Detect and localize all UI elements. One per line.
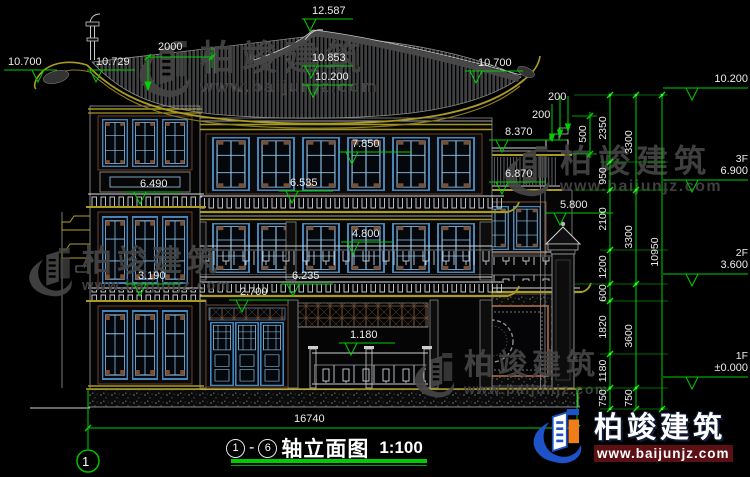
floor3-label: 3F xyxy=(664,154,748,165)
level-tower-eave-lower: 3.190 xyxy=(138,271,166,282)
floor2-label: 2F xyxy=(664,248,748,259)
dim-wing-200a: 200 xyxy=(548,92,566,103)
dim-top-2000: 2000 xyxy=(158,42,182,53)
dim-total-width: 16740 xyxy=(294,414,325,425)
dim-fine-1180: 1180 xyxy=(598,360,608,383)
level-eave-left: 10.700 xyxy=(8,57,42,68)
dim-fine-950: 950 xyxy=(598,167,608,185)
level-eave-left2: 10.729 xyxy=(96,57,130,68)
floor2-elevation: 3.600 xyxy=(664,260,748,271)
title-axis-circle-6: 6 xyxy=(258,439,277,458)
brand-logo-icon xyxy=(530,408,586,466)
level-eave-right: 10.700 xyxy=(478,58,512,69)
cad-elevation-drawing: 柏竣建筑 www.baijunjz.com 柏竣建筑 www.baijunjz.… xyxy=(0,0,750,477)
level-wing-roof: 8.370 xyxy=(505,127,533,138)
floor1-elevation: ±0.000 xyxy=(664,363,748,374)
dim-floor-750: 750 xyxy=(624,389,634,407)
level-right-top: 10.200 xyxy=(664,74,748,85)
floor3-elevation: 6.900 xyxy=(664,166,748,177)
brand-url: www.baijunjz.com xyxy=(594,445,733,462)
level-mid-upper: 10.853 xyxy=(312,53,346,64)
level-f3-window: 7.850 xyxy=(352,139,380,150)
level-f3-eave: 6.535 xyxy=(290,178,318,189)
level-mid-lower: 10.200 xyxy=(315,72,349,83)
level-pillar-cap: 5.800 xyxy=(560,200,588,211)
level-railing: 1.180 xyxy=(350,330,378,341)
dim-fine-1820: 1820 xyxy=(598,315,608,338)
dim-fine-2350: 2350 xyxy=(598,116,608,139)
level-tower-eave-upper: 6.490 xyxy=(140,179,168,190)
title-scale: 1:100 xyxy=(379,438,422,458)
level-wing-eave: 6.870 xyxy=(505,169,533,180)
dim-floor-3300b: 3300 xyxy=(624,225,634,248)
dim-wing-200b: 200 xyxy=(532,110,550,121)
title-underline-thick xyxy=(231,459,427,463)
floor1-label: 1F xyxy=(664,351,748,362)
title-underline-thin xyxy=(231,465,427,466)
level-f2-window: 4.800 xyxy=(352,229,380,240)
level-ridge: 12.587 xyxy=(312,6,346,17)
brand-name: 柏竣建筑 xyxy=(594,413,733,443)
dim-fine-2100: 2100 xyxy=(598,207,608,230)
dim-floor-3600: 3600 xyxy=(624,324,634,347)
linear-dimensions xyxy=(85,47,597,450)
dim-floor-3300a: 3300 xyxy=(624,130,634,153)
watermark-bottom-right: 柏竣建筑 www.baijunjz.com xyxy=(530,408,733,466)
dim-fine-750: 750 xyxy=(598,389,608,407)
dim-fine-1200: 1200 xyxy=(598,255,608,278)
level-f2-eave: 6.235 xyxy=(292,271,320,282)
title-dash: - xyxy=(249,439,254,457)
dim-total-height: 10950 xyxy=(650,237,660,266)
dim-wing-500: 500 xyxy=(578,125,588,143)
title-axis-circle-1: 1 xyxy=(226,439,245,458)
level-door-top: 2.700 xyxy=(240,287,268,298)
dim-fine-600: 600 xyxy=(598,284,608,302)
axis-bubble-label: 1 xyxy=(82,454,89,469)
